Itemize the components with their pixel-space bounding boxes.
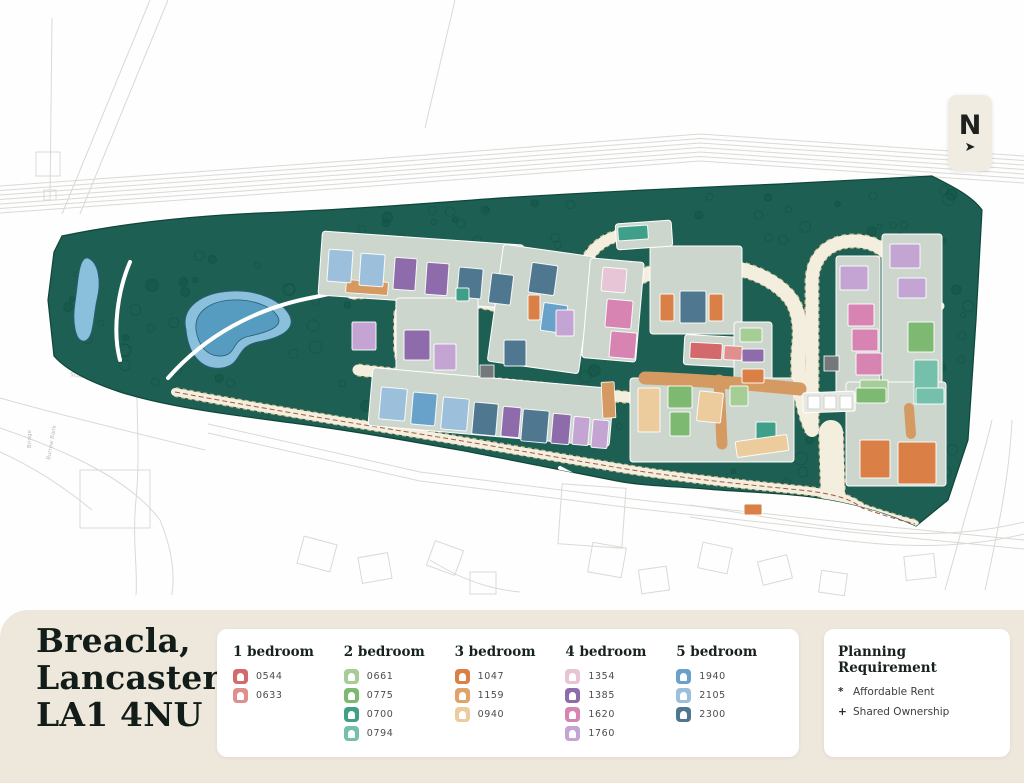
door-icon <box>569 711 576 719</box>
house-type-code: 0544 <box>256 671 283 682</box>
house-block-1047[interactable] <box>742 369 764 383</box>
legend-item: 1620 <box>565 707 676 722</box>
door-icon <box>237 673 244 681</box>
legend-group-label: 4 bedroom <box>565 644 676 660</box>
siteplan-page: BridgeBurrow BankScotforth Road N ➤ Brea… <box>0 0 1024 783</box>
house-type-swatch-icon <box>565 707 580 722</box>
legend-item: 1760 <box>565 726 676 741</box>
house-block-1760[interactable] <box>572 416 590 445</box>
house-type-swatch-icon <box>676 688 691 703</box>
house-block-1385[interactable] <box>501 406 522 437</box>
house-block-1620[interactable] <box>605 299 633 329</box>
house-block-2105[interactable] <box>441 397 470 431</box>
planning-label: Affordable Rent <box>853 686 935 698</box>
house-type-code: 0661 <box>367 671 394 682</box>
house-type-swatch-icon <box>565 688 580 703</box>
north-indicator: N ➤ <box>948 95 992 171</box>
legend-item: 1159 <box>455 688 566 703</box>
house-block-1760[interactable] <box>840 266 868 290</box>
house-block-1620[interactable] <box>848 304 874 326</box>
house-type-swatch-icon <box>233 688 248 703</box>
house-block-2105[interactable] <box>327 249 353 283</box>
planning-bullet-icon: + <box>838 706 846 718</box>
house-block-0940[interactable] <box>638 388 660 432</box>
context-road-label: Burrow Bank <box>46 424 58 460</box>
house-block-0700[interactable] <box>456 288 469 301</box>
house-block-1620[interactable] <box>856 353 882 375</box>
house-type-swatch-icon <box>233 669 248 684</box>
house-type-code: 1760 <box>588 728 615 739</box>
house-block-1620[interactable] <box>609 331 637 359</box>
legend-item: 0775 <box>344 688 455 703</box>
house-type-code: 1159 <box>478 690 505 701</box>
door-icon <box>680 692 687 700</box>
legend-item: 1385 <box>565 688 676 703</box>
house-type-swatch-icon <box>344 669 359 684</box>
house-block-0700[interactable] <box>618 225 649 241</box>
house-block-0661[interactable] <box>740 328 762 342</box>
door-icon <box>680 711 687 719</box>
legend-item: 0794 <box>344 726 455 741</box>
legend-group: 4 bedroom1354138516201760 <box>565 644 676 745</box>
house-block-1620[interactable] <box>852 329 878 351</box>
legend-item: 0661 <box>344 669 455 684</box>
bedroom-legend: 1 bedroom054406332 bedroom06610775070007… <box>217 629 799 757</box>
house-block-2300[interactable] <box>680 291 706 323</box>
house-block-1940[interactable] <box>411 392 438 426</box>
house-type-code: 0940 <box>478 709 505 720</box>
door-icon <box>569 730 576 738</box>
house-type-code: 0794 <box>367 728 394 739</box>
house-block-1047[interactable] <box>528 295 540 320</box>
garage-door <box>840 396 852 409</box>
house-block-0775[interactable] <box>670 412 690 436</box>
legend-item: 0544 <box>233 669 344 684</box>
door-icon <box>348 730 355 738</box>
context-road-label: Bridge <box>27 429 33 448</box>
legend-item: 0700 <box>344 707 455 722</box>
house-type-code: 1354 <box>588 671 615 682</box>
legend-item: 1354 <box>565 669 676 684</box>
door-icon <box>348 673 355 681</box>
legend-item: 0940 <box>455 707 566 722</box>
house-block-2300[interactable] <box>488 273 513 305</box>
house-block-2105[interactable] <box>379 387 408 421</box>
legend-item: 2105 <box>676 688 787 703</box>
house-type-code: 1940 <box>699 671 726 682</box>
door-icon <box>569 692 576 700</box>
house-block-2300[interactable] <box>521 409 550 443</box>
siteplan-map: BridgeBurrow BankScotforth Road <box>0 0 1024 610</box>
house-block-0940[interactable] <box>696 391 723 423</box>
house-block-0544[interactable] <box>690 342 723 360</box>
legend-item: 0633 <box>233 688 344 703</box>
house-block-1354[interactable] <box>601 267 627 293</box>
legend-item: 2300 <box>676 707 787 722</box>
door-icon <box>348 711 355 719</box>
house-type-swatch-icon <box>676 669 691 684</box>
house-block-1385[interactable] <box>393 257 417 290</box>
planning-bullet-icon: * <box>838 686 846 698</box>
house-block-2300[interactable] <box>528 262 558 295</box>
door-icon <box>459 711 466 719</box>
house-block-1760[interactable] <box>556 310 574 336</box>
house-type-swatch-icon <box>344 688 359 703</box>
garage-door <box>808 396 820 409</box>
house-block-1385[interactable] <box>551 413 572 444</box>
door-icon <box>459 673 466 681</box>
house-block-2300[interactable] <box>504 340 526 366</box>
legend-group-label: 1 bedroom <box>233 644 344 660</box>
house-block-0775[interactable] <box>856 388 886 403</box>
site-title-line3: LA1 4NU <box>36 696 229 733</box>
house-block-2105[interactable] <box>359 253 385 287</box>
planning-requirement-card: Planning Requirement *Affordable Rent+Sh… <box>824 629 1010 757</box>
house-block-1760[interactable] <box>352 322 376 350</box>
planning-items: *Affordable Rent+Shared Ownership <box>838 686 996 718</box>
site-title-line1: Breacla, <box>36 622 229 659</box>
house-block-1760[interactable] <box>890 244 920 268</box>
house-block-1760[interactable] <box>434 344 456 370</box>
house-block-1047[interactable] <box>898 442 936 484</box>
utility-structure <box>824 356 839 371</box>
planning-title: Planning Requirement <box>838 644 996 676</box>
house-block-0775[interactable] <box>908 322 934 352</box>
house-block-1047[interactable] <box>660 294 674 321</box>
house-block-1385[interactable] <box>404 330 430 360</box>
legend-group: 3 bedroom104711590940 <box>455 644 566 745</box>
legend-group-label: 5 bedroom <box>676 644 787 660</box>
house-block-1760[interactable] <box>591 419 609 448</box>
legend-item: 1940 <box>676 669 787 684</box>
house-block-0775[interactable] <box>668 386 692 408</box>
house-type-code: 1620 <box>588 709 615 720</box>
door-icon <box>569 673 576 681</box>
house-type-swatch-icon <box>455 688 470 703</box>
house-type-swatch-icon <box>455 669 470 684</box>
house-block-1047[interactable] <box>709 294 723 321</box>
legend-group-label: 3 bedroom <box>455 644 566 660</box>
site-title-line2: Lancaster, <box>36 659 229 696</box>
legend-group: 5 bedroom194021052300 <box>676 644 787 745</box>
legend-item: 1047 <box>455 669 566 684</box>
garage-door <box>824 396 836 409</box>
house-block-0794[interactable] <box>916 388 944 404</box>
house-block-1760[interactable] <box>898 278 926 298</box>
house-type-code: 0633 <box>256 690 283 701</box>
planning-label: Shared Ownership <box>853 706 949 718</box>
door-icon <box>237 692 244 700</box>
legend-group-label: 2 bedroom <box>344 644 455 660</box>
house-block-0633[interactable] <box>724 346 743 361</box>
house-block-1385[interactable] <box>425 262 449 295</box>
house-type-swatch-icon <box>565 726 580 741</box>
house-block-2300[interactable] <box>472 402 499 436</box>
house-type-code: 2300 <box>699 709 726 720</box>
house-type-code: 0700 <box>367 709 394 720</box>
house-type-swatch-icon <box>344 707 359 722</box>
house-type-swatch-icon <box>455 707 470 722</box>
utility-structure <box>480 365 494 378</box>
door-icon <box>348 692 355 700</box>
north-arrow-icon: ➤ <box>965 141 976 154</box>
planning-item: *Affordable Rent <box>838 686 996 698</box>
house-type-code: 1385 <box>588 690 615 701</box>
house-type-code: 0775 <box>367 690 394 701</box>
house-block-1047[interactable] <box>860 440 890 478</box>
house-block-1047[interactable] <box>744 504 762 515</box>
door-icon <box>459 692 466 700</box>
house-type-code: 2105 <box>699 690 726 701</box>
legend-group: 1 bedroom05440633 <box>233 644 344 745</box>
north-label: N <box>959 112 982 139</box>
legend-group: 2 bedroom0661077507000794 <box>344 644 455 745</box>
door-icon <box>680 673 687 681</box>
house-type-swatch-icon <box>344 726 359 741</box>
house-block-0661[interactable] <box>730 386 748 406</box>
house-type-swatch-icon <box>565 669 580 684</box>
house-block-1385[interactable] <box>742 349 764 362</box>
planning-item: +Shared Ownership <box>838 706 996 718</box>
house-type-swatch-icon <box>676 707 691 722</box>
site-title: Breacla, Lancaster, LA1 4NU <box>36 622 229 733</box>
house-type-code: 1047 <box>478 671 505 682</box>
